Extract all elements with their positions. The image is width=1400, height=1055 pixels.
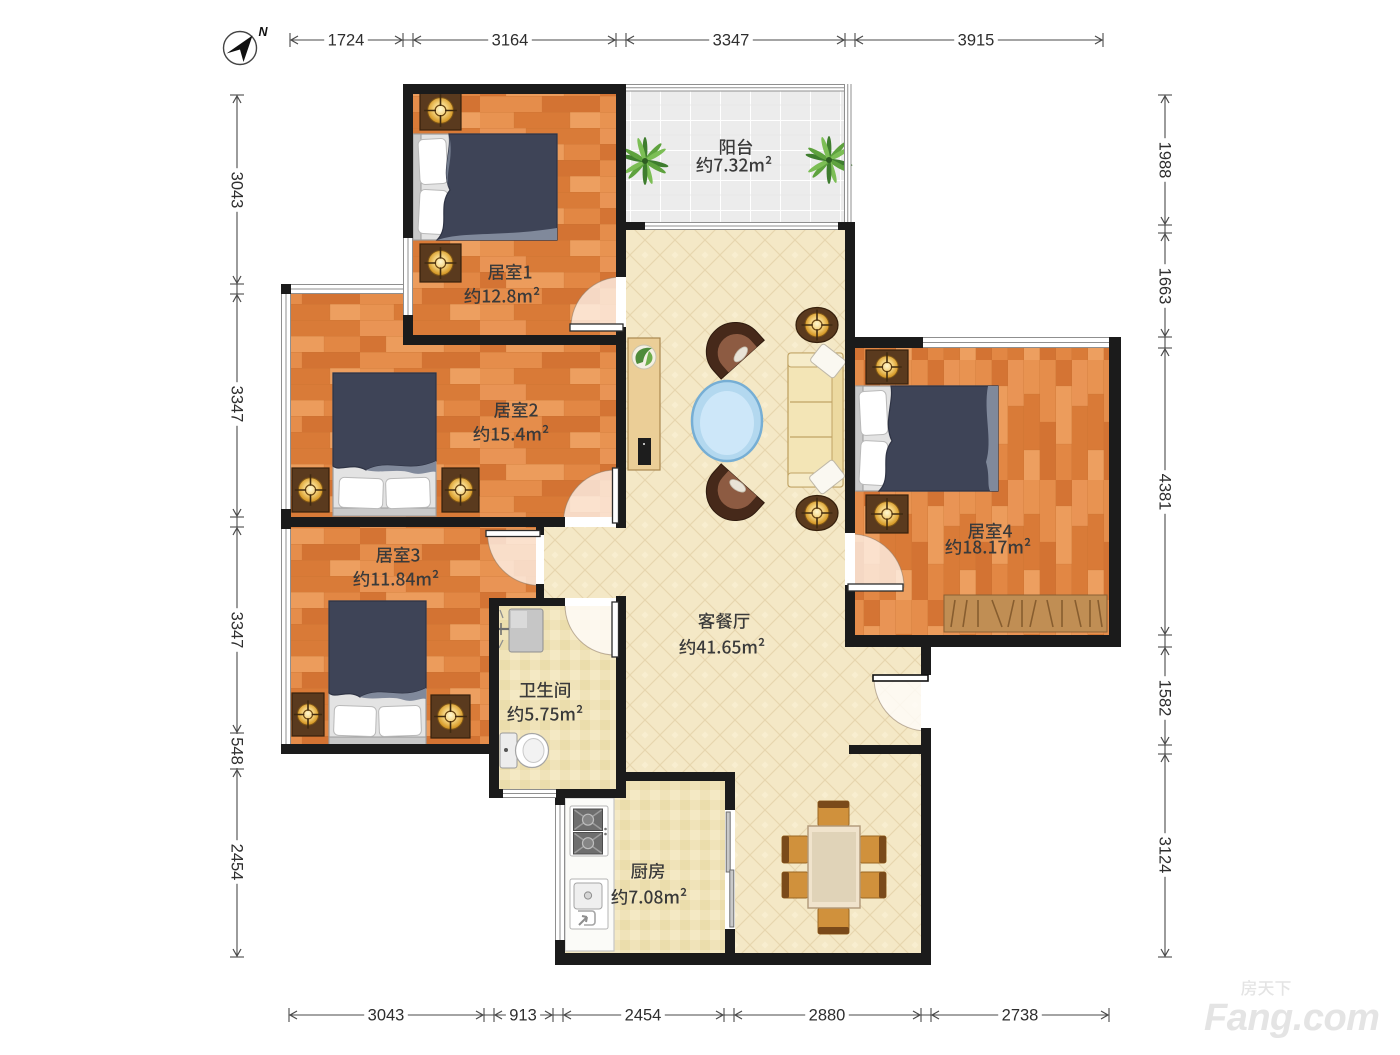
svg-text:1582: 1582 [1156, 680, 1174, 717]
svg-text:3347: 3347 [713, 32, 750, 50]
svg-text:3915: 3915 [958, 32, 995, 50]
svg-text:3043: 3043 [368, 1007, 405, 1025]
svg-text:2454: 2454 [228, 844, 246, 881]
svg-text:1988: 1988 [1156, 142, 1174, 179]
svg-text:548: 548 [228, 737, 246, 765]
svg-text:3043: 3043 [228, 172, 246, 209]
svg-text:1724: 1724 [328, 32, 365, 50]
svg-text:3347: 3347 [228, 612, 246, 649]
svg-text:3164: 3164 [492, 32, 529, 50]
svg-text:N: N [259, 25, 269, 39]
svg-text:3124: 3124 [1156, 837, 1174, 874]
svg-text:1663: 1663 [1156, 268, 1174, 305]
svg-text:2880: 2880 [809, 1007, 846, 1025]
svg-text:4381: 4381 [1156, 474, 1174, 511]
svg-text:2454: 2454 [625, 1007, 662, 1025]
svg-text:913: 913 [509, 1007, 537, 1025]
svg-text:2738: 2738 [1002, 1007, 1039, 1025]
svg-text:3347: 3347 [228, 386, 246, 423]
svg-text:Fang.com: Fang.com [1204, 997, 1379, 1039]
